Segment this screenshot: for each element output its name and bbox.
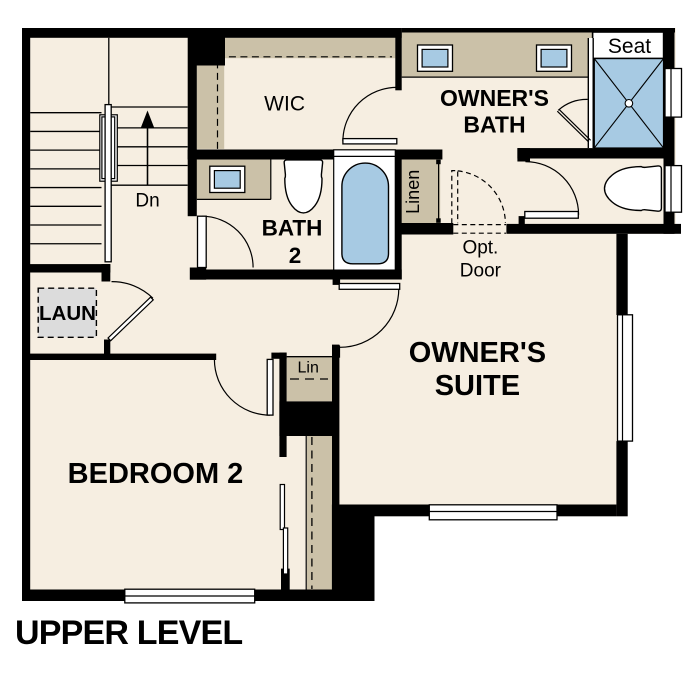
svg-text:LAUN: LAUN [39,302,96,325]
svg-text:BEDROOM 2: BEDROOM 2 [68,458,244,490]
svg-text:Door: Door [460,260,502,281]
svg-text:2: 2 [289,243,302,268]
svg-text:OWNER'S: OWNER'S [409,337,546,369]
svg-text:WIC: WIC [264,93,305,116]
svg-text:Linen: Linen [403,170,423,214]
svg-text:BATH: BATH [463,111,525,137]
svg-text:BATH: BATH [262,216,323,241]
svg-text:OWNER'S: OWNER'S [440,85,549,111]
svg-text:Opt.: Opt. [462,237,498,258]
svg-text:Lin: Lin [298,360,319,377]
svg-text:Dn: Dn [135,191,159,212]
svg-text:SUITE: SUITE [435,370,520,402]
svg-text:UPPER LEVEL: UPPER LEVEL [15,614,242,652]
svg-text:Seat: Seat [608,35,651,58]
